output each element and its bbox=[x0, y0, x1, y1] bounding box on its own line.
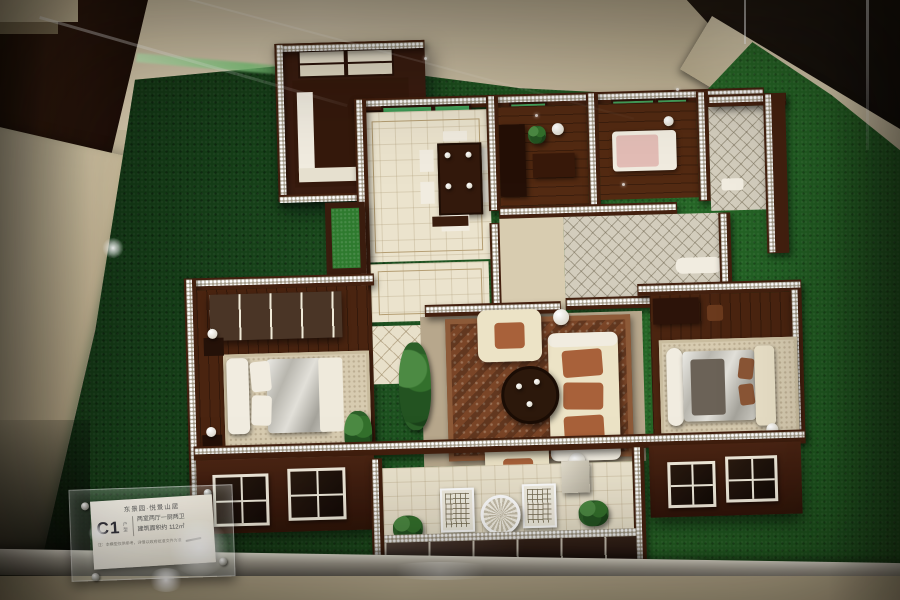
armchair-cushion bbox=[494, 322, 525, 349]
potted-plant bbox=[578, 500, 609, 527]
dining-chair bbox=[443, 131, 467, 142]
glass-dust-speck bbox=[424, 57, 427, 60]
bathtub bbox=[675, 257, 721, 274]
desk bbox=[533, 153, 576, 178]
teacup bbox=[526, 401, 532, 407]
tableware bbox=[466, 183, 472, 189]
spec-line1: 两室两厅一厨两卫 bbox=[137, 514, 185, 523]
dining-chair bbox=[419, 150, 434, 172]
sofa-cushion bbox=[561, 348, 603, 378]
photo-scene: 东景园·悦景山居 C1 户型 两室两厅一厨两卫 建筑面积约 112㎡ 注：本模型… bbox=[0, 0, 900, 600]
divider bbox=[132, 516, 134, 536]
dining-chair bbox=[420, 182, 435, 204]
pillow bbox=[251, 395, 272, 425]
scale-model bbox=[157, 26, 832, 600]
tableware bbox=[444, 152, 450, 158]
bookcase bbox=[499, 124, 527, 197]
duvet-fold bbox=[318, 357, 344, 432]
shelf-edge bbox=[0, 22, 58, 34]
window bbox=[287, 467, 346, 521]
blanket bbox=[690, 359, 726, 416]
pillow bbox=[660, 134, 673, 166]
pillow bbox=[249, 361, 272, 393]
kitchen-skylight bbox=[298, 48, 395, 79]
potted-plant bbox=[528, 126, 546, 144]
glass-dust-speck bbox=[676, 88, 679, 91]
pink-blanket bbox=[616, 134, 659, 167]
dresser bbox=[653, 297, 700, 324]
skylight-pane bbox=[300, 64, 344, 76]
armchair bbox=[477, 309, 542, 363]
light-glare bbox=[168, 520, 230, 576]
window bbox=[725, 455, 778, 502]
nightstand bbox=[204, 338, 224, 357]
east-exterior-wall bbox=[763, 93, 789, 254]
glass-dust-speck bbox=[535, 114, 538, 117]
headboard bbox=[226, 358, 250, 435]
light-glare bbox=[88, 524, 108, 542]
wardrobe bbox=[209, 291, 342, 341]
unit-code-label: 户型 bbox=[122, 521, 129, 532]
teacup bbox=[534, 379, 540, 385]
light-glare bbox=[380, 562, 500, 580]
skylight-pane bbox=[348, 63, 392, 75]
tableware bbox=[445, 183, 451, 189]
sofa-cushion bbox=[563, 382, 603, 409]
ac-unit-box bbox=[561, 460, 590, 493]
tableware bbox=[465, 152, 471, 158]
brown-pillow bbox=[738, 383, 756, 406]
light-glare bbox=[102, 238, 124, 258]
courtyard bbox=[325, 202, 367, 275]
bedroom2-south-face bbox=[649, 442, 803, 518]
small-bed bbox=[612, 130, 677, 172]
kitchen-wall-left bbox=[274, 44, 285, 202]
chair bbox=[707, 305, 723, 321]
bath-fixture bbox=[721, 178, 743, 191]
sofa-armrest bbox=[548, 332, 618, 348]
light-glare bbox=[148, 568, 184, 592]
courtyard-grass bbox=[331, 208, 361, 269]
window bbox=[667, 461, 716, 508]
patio-chair bbox=[440, 488, 475, 533]
console-table bbox=[432, 216, 468, 227]
glass-dust-speck bbox=[622, 183, 625, 186]
glass-corner-edge bbox=[866, 0, 869, 150]
headboard bbox=[754, 345, 776, 426]
brown-pillow bbox=[737, 357, 754, 380]
dining-table bbox=[437, 142, 483, 215]
patio-chair bbox=[522, 483, 557, 528]
teacup bbox=[516, 383, 522, 389]
glass-corner-edge bbox=[744, 0, 746, 44]
skylight-pane bbox=[300, 51, 344, 63]
